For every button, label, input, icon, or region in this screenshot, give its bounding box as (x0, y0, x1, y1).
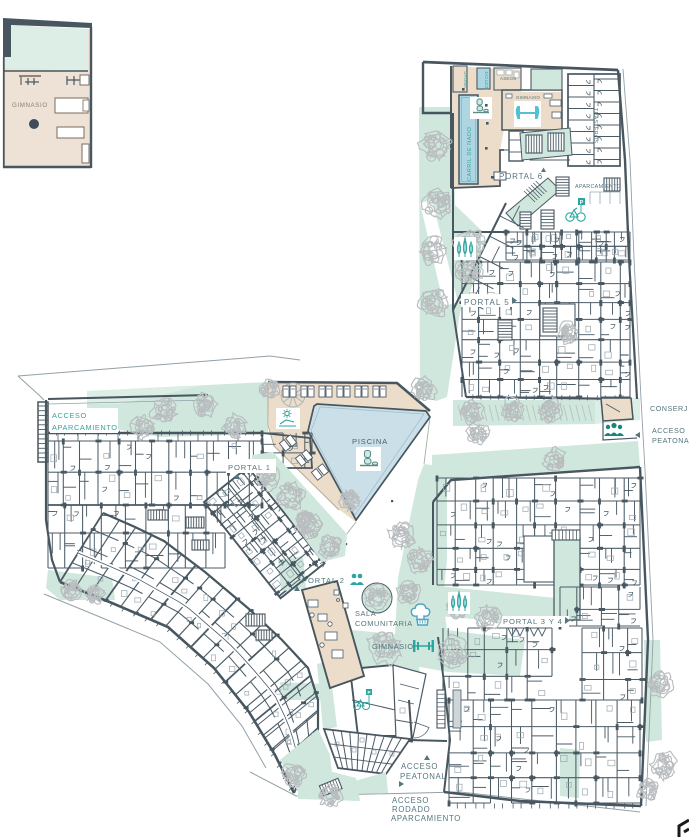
svg-text:COMUNITARIA: COMUNITARIA (355, 619, 413, 628)
svg-text:PORTAL 3 Y 4: PORTAL 3 Y 4 (503, 617, 563, 626)
svg-text:APARCAMIENTO: APARCAMIENTO (575, 184, 621, 190)
svg-text:PORTAL 2: PORTAL 2 (302, 576, 345, 585)
svg-text:ASEOS: ASEOS (500, 76, 517, 81)
svg-text:ACCESO: ACCESO (401, 762, 438, 771)
svg-text:PORTAL 6: PORTAL 6 (499, 172, 543, 181)
svg-text:P: P (367, 690, 370, 695)
svg-text:APARCAMIENTO: APARCAMIENTO (391, 814, 461, 823)
svg-text:GIMNASIO: GIMNASIO (516, 95, 540, 100)
svg-text:APARCAMIENTO: APARCAMIENTO (52, 423, 118, 432)
svg-text:GIMNASIO: GIMNASIO (12, 102, 48, 109)
svg-text:TRASTEROS: TRASTEROS (592, 108, 598, 143)
svg-text:GIMNASIO: GIMNASIO (372, 642, 414, 651)
svg-text:ACCESO: ACCESO (52, 411, 87, 420)
svg-text:SALA: SALA (355, 609, 376, 618)
svg-text:ACCESO: ACCESO (392, 796, 429, 805)
svg-text:SAUNA: SAUNA (463, 71, 468, 89)
svg-text:PORTAL 5: PORTAL 5 (464, 298, 510, 307)
svg-text:PISCINA: PISCINA (352, 437, 388, 446)
svg-text:RODADO: RODADO (392, 805, 430, 814)
svg-text:CONSERJ: CONSERJ (650, 404, 688, 413)
svg-text:PORTAL 1: PORTAL 1 (228, 463, 271, 472)
svg-text:CARRIL DE NADO: CARRIL DE NADO (467, 127, 473, 181)
svg-text:PEATONA: PEATONA (652, 436, 689, 445)
svg-text:ACCESO: ACCESO (652, 426, 685, 435)
svg-text:P: P (580, 200, 584, 206)
svg-text:JACUZZI: JACUZZI (484, 71, 489, 90)
svg-text:PEATONAL: PEATONAL (400, 772, 446, 781)
